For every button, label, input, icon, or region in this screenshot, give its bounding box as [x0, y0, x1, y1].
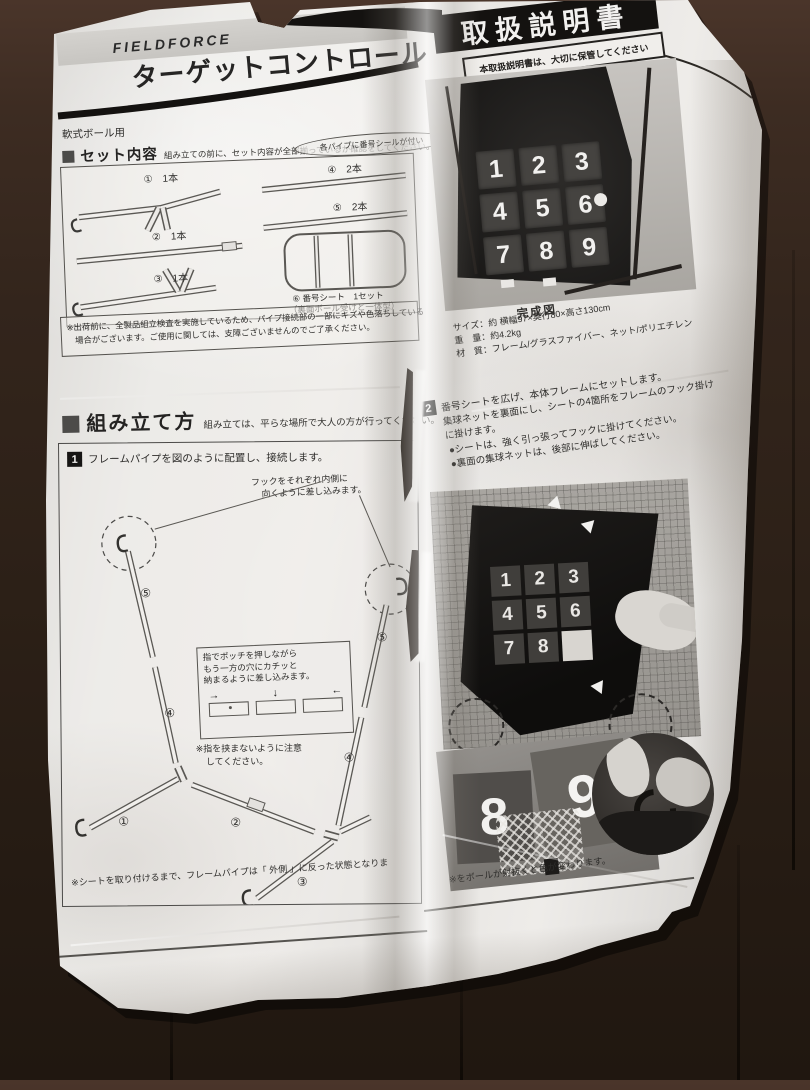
target-tile-8: 8: [526, 230, 567, 271]
assembly-lead: 組み立ては、平らな場所で大人の方が行ってください。: [203, 412, 440, 431]
step2-photo: 1 2 3 4 5 6 7 8: [430, 478, 701, 749]
grid-tile-3: 3: [558, 562, 590, 594]
frame-pole-left: [445, 86, 478, 274]
number-grid: 1 2 3 4 5 6 7 8 9: [475, 141, 609, 275]
tile-tab: [501, 279, 515, 288]
floor-plank-seam: [737, 845, 740, 1080]
pull-arrow-icon: [581, 520, 598, 535]
target-tile-2: 2: [518, 145, 559, 186]
grid-tile-5: 5: [526, 598, 558, 630]
dark-panel-edge: [598, 811, 714, 855]
connector-pipe-diagram: [303, 697, 344, 713]
grid-tile-6: 6: [560, 596, 592, 628]
grid-tile-1: 1: [490, 565, 522, 597]
flipped-white-panel: [561, 630, 593, 662]
step2-number-badge: 2: [420, 400, 437, 417]
pull-arrow-icon: [547, 494, 564, 509]
part-1-label: ① 1本: [143, 169, 178, 185]
connector-pipe-diagram: [256, 699, 297, 715]
pipe-label-2: ②: [230, 815, 241, 829]
pipe-label-4-left: ④: [164, 706, 175, 720]
pipe-label-5-left: ⑤: [140, 586, 151, 600]
pinch-warning: ※指を挟まないように注意 してください。: [196, 742, 303, 769]
target-tile-5: 5: [522, 188, 563, 229]
panel-8: 8: [453, 770, 536, 864]
connector-pipe-diagram: [209, 701, 250, 717]
photo-of-instruction-manual: { "header": { "brand": "FIELDFORCE", "ti…: [0, 0, 810, 1080]
parts-box: ① 1本 ② 1本 ③ 1本 ④ 2本 ⑤ 2本 ⑥ 番号シート 1セット （裏…: [60, 153, 420, 327]
brand-swoosh-icon: [78, 45, 105, 58]
hook-point-circle: [447, 696, 506, 749]
grid-tile-8: 8: [528, 632, 560, 664]
part-4-label: ④ 2本: [327, 160, 362, 176]
step1-box: 1 フレームパイプを図のように配置し、接続します。 フックをそれぞれ内側に 向く…: [58, 440, 422, 907]
paper-crease: [71, 916, 400, 947]
assembly-heading: 組み立て方 組み立ては、平らな場所で大人の方が行ってください。: [62, 400, 440, 437]
sticker-note-text: 各パイプに番号シールが付い: [319, 135, 424, 153]
tile-tab: [543, 277, 557, 286]
assembly-title: 組み立て方: [86, 405, 197, 436]
paper-crease: [60, 386, 400, 400]
heading-square-icon: [62, 416, 79, 433]
grid-tile-2: 2: [524, 564, 556, 596]
pipe-label-5-right: ⑤: [377, 630, 388, 644]
step2-number-grid: 1 2 3 4 5 6 7 8: [490, 562, 593, 665]
arrow-right-icon: →: [208, 689, 220, 701]
pipe-label-1: ①: [118, 814, 129, 828]
heading-square-icon: [62, 151, 74, 163]
paper-fold: [38, 898, 693, 1042]
target-tile-6: 6: [565, 184, 606, 225]
pull-arrow-icon: [590, 679, 603, 694]
pipe-label-3: ③: [297, 875, 308, 889]
part-5-label: ⑤ 2本: [333, 198, 368, 214]
target-tile-7: 7: [483, 234, 524, 275]
grid-tile-4: 4: [492, 599, 524, 631]
target-tile-3: 3: [561, 141, 602, 182]
divider-rule-left: [56, 930, 427, 957]
target-tile-1: 1: [475, 149, 516, 190]
pinch-warning-line2: してください。: [196, 755, 302, 769]
hook-attach-inset-photo: [592, 733, 714, 855]
floor-plank-seam: [792, 250, 795, 870]
arrow-left-icon: ←: [331, 684, 343, 696]
arrow-down-icon: ↓: [272, 687, 278, 699]
completed-product-photo: 1 2 3 4 5 6 7 8 9: [425, 58, 696, 311]
step2-block: 2 番号シートを広げ、本体フレームにセットします。 集球ネットを裏面にし、シート…: [420, 359, 737, 476]
step1-title: フレームパイプを図のように配置し、接続します。: [88, 450, 328, 467]
grid-tile-7: 7: [494, 633, 526, 665]
push-instruction-box: 指でポッチを押しながら もう一方の穴にカチッと 納まるように差し込みます。 → …: [196, 641, 354, 740]
frame-base-bar: [564, 264, 682, 295]
ball-type-label: 軟式ボール用: [62, 127, 125, 142]
part-3-label: ③ 1本: [153, 269, 188, 285]
pipe-label-4-right: ④: [344, 750, 355, 764]
paper-sheet: FIELDFORCE ターゲットコントロール 取扱説明書 本取扱説明書は、大切に…: [0, 0, 810, 1080]
step1-number-badge: 1: [67, 452, 82, 467]
pinch-warning-line1: ※指を挟まないように注意: [196, 742, 302, 756]
target-tile-9: 9: [569, 227, 610, 268]
frame-pole-right: [633, 68, 652, 280]
part-2-label: ② 1本: [152, 227, 187, 243]
floor-plank-seam: [460, 975, 463, 1080]
target-tile-4: 4: [479, 191, 520, 232]
